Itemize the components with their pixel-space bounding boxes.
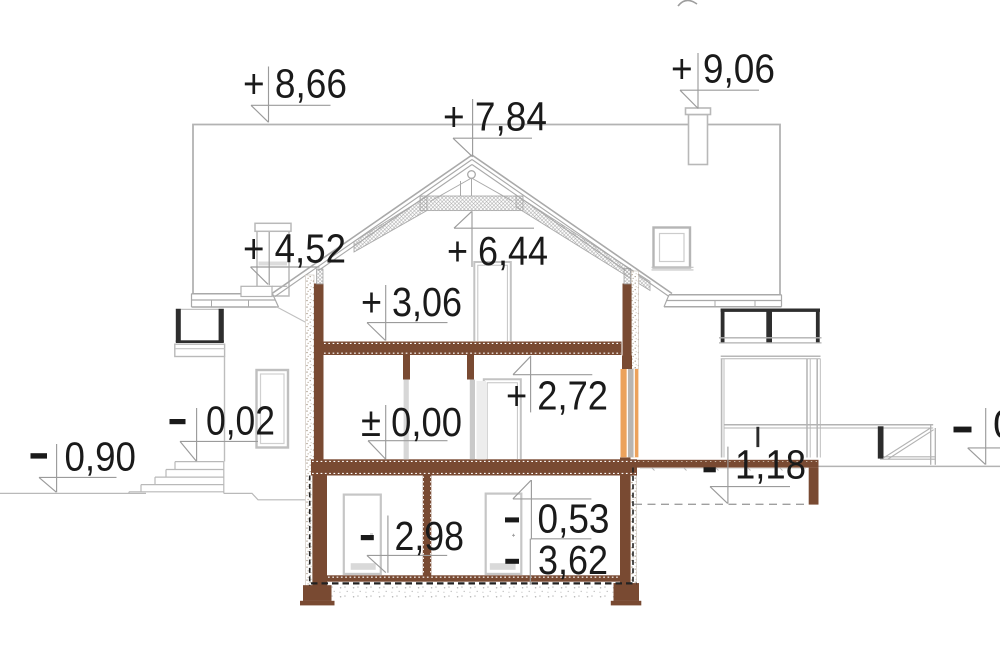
svg-text:+ 3,06: + 3,06 — [361, 279, 462, 325]
svg-text:1,18: 1,18 — [735, 442, 806, 488]
svg-text:+ 9,06: + 9,06 — [671, 45, 775, 91]
svg-text:+ 8,66: + 8,66 — [243, 61, 347, 107]
svg-text:± 0,00: ± 0,00 — [361, 399, 462, 445]
svg-text:0,02: 0,02 — [993, 401, 1000, 447]
svg-text:+ 2,72: + 2,72 — [506, 372, 608, 418]
svg-text:+ 4,52: + 4,52 — [243, 226, 346, 272]
svg-text:3,62: 3,62 — [538, 537, 608, 583]
svg-text:0,02: 0,02 — [206, 397, 275, 443]
svg-text:2,98: 2,98 — [395, 513, 465, 559]
svg-text:+ 6,44: + 6,44 — [447, 228, 548, 274]
svg-text:0,90: 0,90 — [65, 433, 137, 479]
svg-text:+ 7,84: + 7,84 — [443, 94, 547, 140]
svg-text:0,53: 0,53 — [538, 495, 610, 541]
